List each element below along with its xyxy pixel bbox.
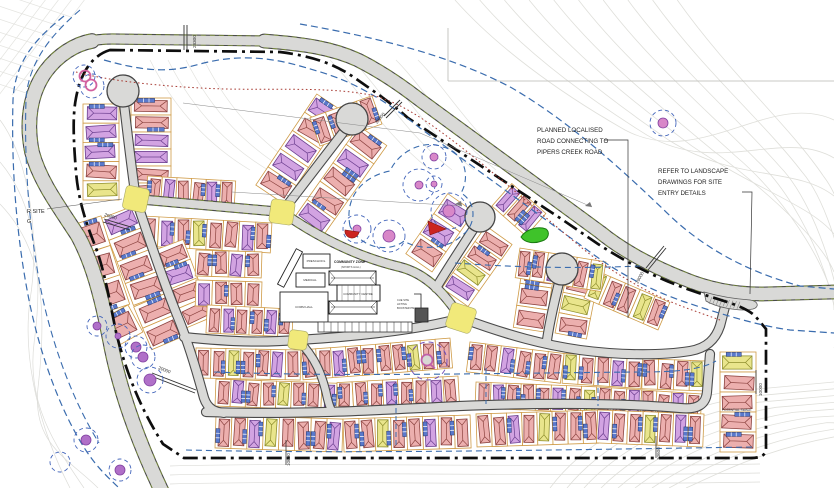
svg-text:COMM HALL: COMM HALL bbox=[295, 305, 313, 309]
svg-text:28300: 28300 bbox=[192, 35, 197, 48]
svg-text:PIPERS CREEK ROAD: PIPERS CREEK ROAD bbox=[537, 149, 603, 156]
svg-text:CUE SITE: CUE SITE bbox=[397, 298, 409, 302]
svg-text:10000: 10000 bbox=[758, 383, 763, 396]
svg-text:COMMUNITY CENTRE: COMMUNITY CENTRE bbox=[343, 292, 373, 296]
svg-text:POTENTIAL SWALE: POTENTIAL SWALE bbox=[722, 408, 752, 412]
svg-text:10600: 10600 bbox=[656, 447, 661, 460]
svg-text:G: G bbox=[27, 219, 31, 225]
svg-text:PLANNED LOCALISED: PLANNED LOCALISED bbox=[537, 127, 603, 134]
svg-text:COMMUNITY ZONE: COMMUNITY ZONE bbox=[334, 260, 366, 264]
svg-text:BOOSTER PM: BOOSTER PM bbox=[397, 306, 414, 310]
svg-text:R SITE: R SITE bbox=[27, 209, 45, 215]
svg-text:LIFTING: LIFTING bbox=[397, 302, 407, 306]
svg-text:ENTRY DETAILS: ENTRY DETAILS bbox=[658, 190, 706, 197]
svg-text:MEDICAL: MEDICAL bbox=[303, 278, 317, 282]
svg-text:PRESCHOOL: PRESCHOOL bbox=[307, 259, 326, 263]
svg-text:(SPORTS HALL): (SPORTS HALL) bbox=[341, 265, 361, 269]
svg-text:10600: 10600 bbox=[286, 453, 291, 466]
svg-text:REFER TO LANDSCAPE: REFER TO LANDSCAPE bbox=[658, 168, 728, 175]
svg-text:DRAWINGS FOR SITE: DRAWINGS FOR SITE bbox=[658, 179, 722, 186]
svg-text:ROAD CONNECTING TO: ROAD CONNECTING TO bbox=[537, 138, 608, 145]
